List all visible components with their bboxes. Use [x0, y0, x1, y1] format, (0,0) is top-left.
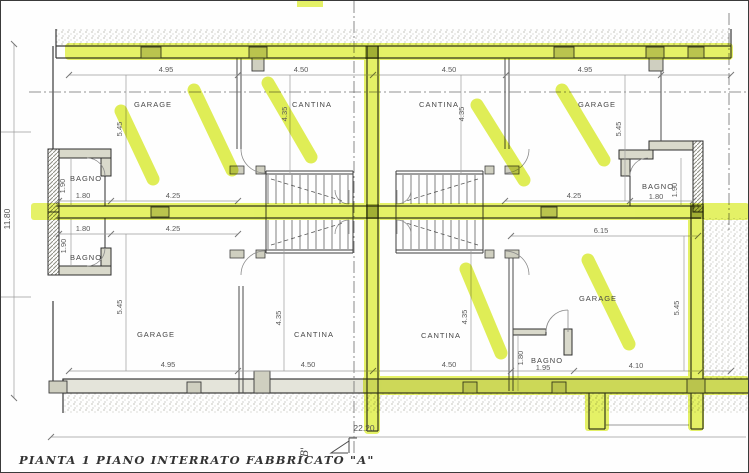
- room-label: BAGNO: [70, 174, 102, 183]
- dim-label: 1.90: [59, 239, 68, 254]
- dim-label: 4.50: [442, 360, 457, 369]
- dim-label: 4.10: [629, 361, 644, 370]
- dim-label: 4.35: [274, 311, 283, 326]
- dim-label: 4.50: [301, 360, 316, 369]
- dim-label: 1.80: [649, 192, 664, 201]
- drawing-caption: PIANTA 1 PIANO INTERRATO FABBRICATO "A": [18, 453, 375, 467]
- dim-label: 5.45: [115, 300, 124, 315]
- dim-label: 1.80: [76, 224, 91, 233]
- room-label: GARAGE: [579, 294, 617, 303]
- dim-label: 4.50: [442, 65, 457, 74]
- room-label: CANTINA: [419, 100, 459, 109]
- room-label: CANTINA: [292, 100, 332, 109]
- dim-label: 1.90: [58, 179, 67, 194]
- dim-label: 4.95: [578, 65, 593, 74]
- dim-label: 6.15: [594, 226, 609, 235]
- dim-label: 4.35: [457, 107, 466, 122]
- dim-label: 1.90: [670, 183, 679, 198]
- dim-label: 4.95: [159, 65, 174, 74]
- dim-label: 1.80: [516, 351, 525, 366]
- room-label: GARAGE: [134, 100, 172, 109]
- room-label: CANTINA: [294, 330, 334, 339]
- dim-label: 4.35: [460, 310, 469, 325]
- overall-width-dim: 22.20: [353, 423, 375, 433]
- section-arrow: [331, 438, 357, 453]
- dim-label: 4.50: [294, 65, 309, 74]
- room-label: GARAGE: [137, 330, 175, 339]
- dim-label: 1.95: [536, 363, 551, 372]
- dim-label: 4.25: [166, 224, 181, 233]
- room-label: BAGNO: [70, 253, 102, 262]
- dim-label: 4.25: [567, 191, 582, 200]
- room-label: GARAGE: [578, 100, 616, 109]
- dim-label: 5.45: [614, 122, 623, 137]
- dim-label: 4.35: [280, 107, 289, 122]
- overall-depth-dim: 11.80: [2, 208, 12, 229]
- room-label: CANTINA: [421, 331, 461, 340]
- floor-plan-sheet: GARAGE CANTINA CANTINA GARAGE BAGNO BAGN…: [0, 0, 749, 473]
- dim-label: 4.95: [161, 360, 176, 369]
- dim-label: 5.45: [672, 301, 681, 316]
- dim-label: 1.80: [76, 191, 91, 200]
- dim-label: 4.25: [166, 191, 181, 200]
- floor-plan-drawing: GARAGE CANTINA CANTINA GARAGE BAGNO BAGN…: [1, 1, 749, 473]
- dim-label: 5.45: [115, 122, 124, 137]
